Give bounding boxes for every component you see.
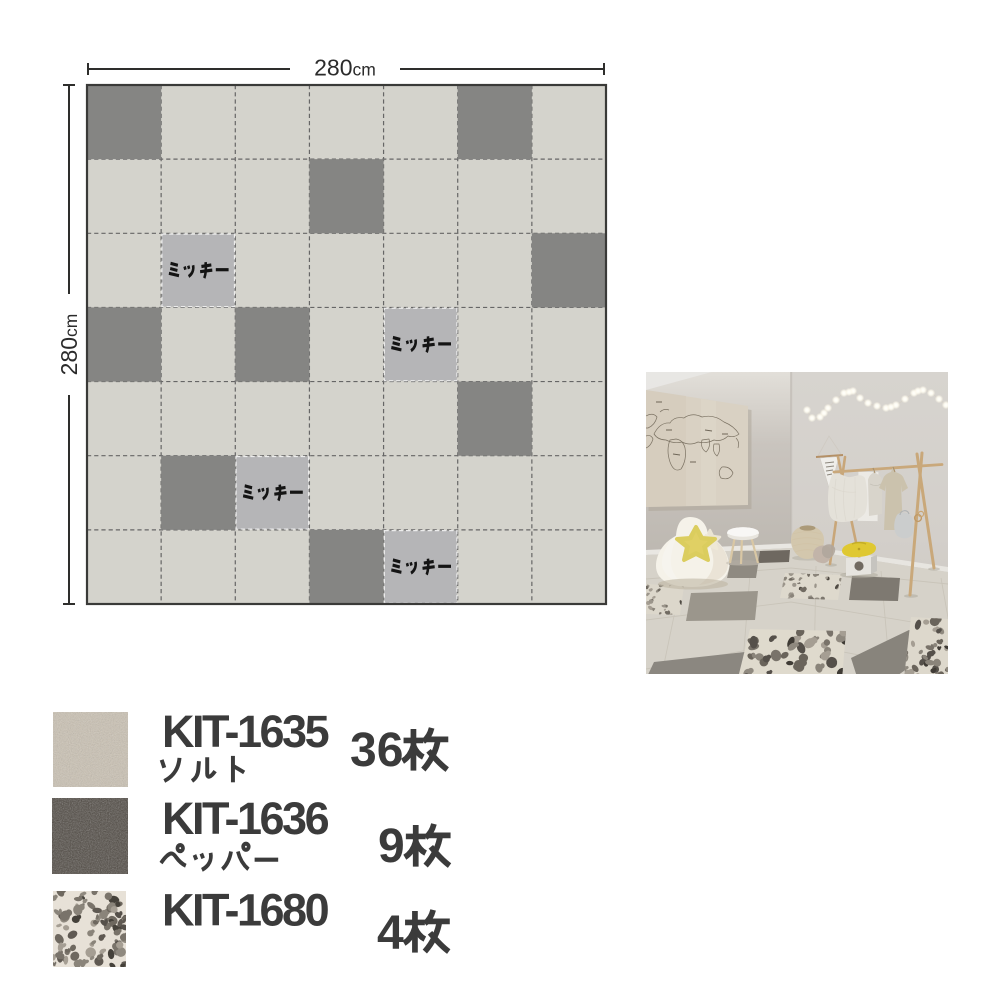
svg-text:4: 4 bbox=[377, 907, 404, 960]
svg-text:KIT-1636: KIT-1636 bbox=[162, 793, 329, 844]
svg-text:9: 9 bbox=[378, 820, 405, 873]
svg-text:KIT-1680: KIT-1680 bbox=[162, 885, 329, 936]
svg-text:KIT-1635: KIT-1635 bbox=[162, 706, 329, 757]
svg-text:36: 36 bbox=[350, 724, 403, 777]
